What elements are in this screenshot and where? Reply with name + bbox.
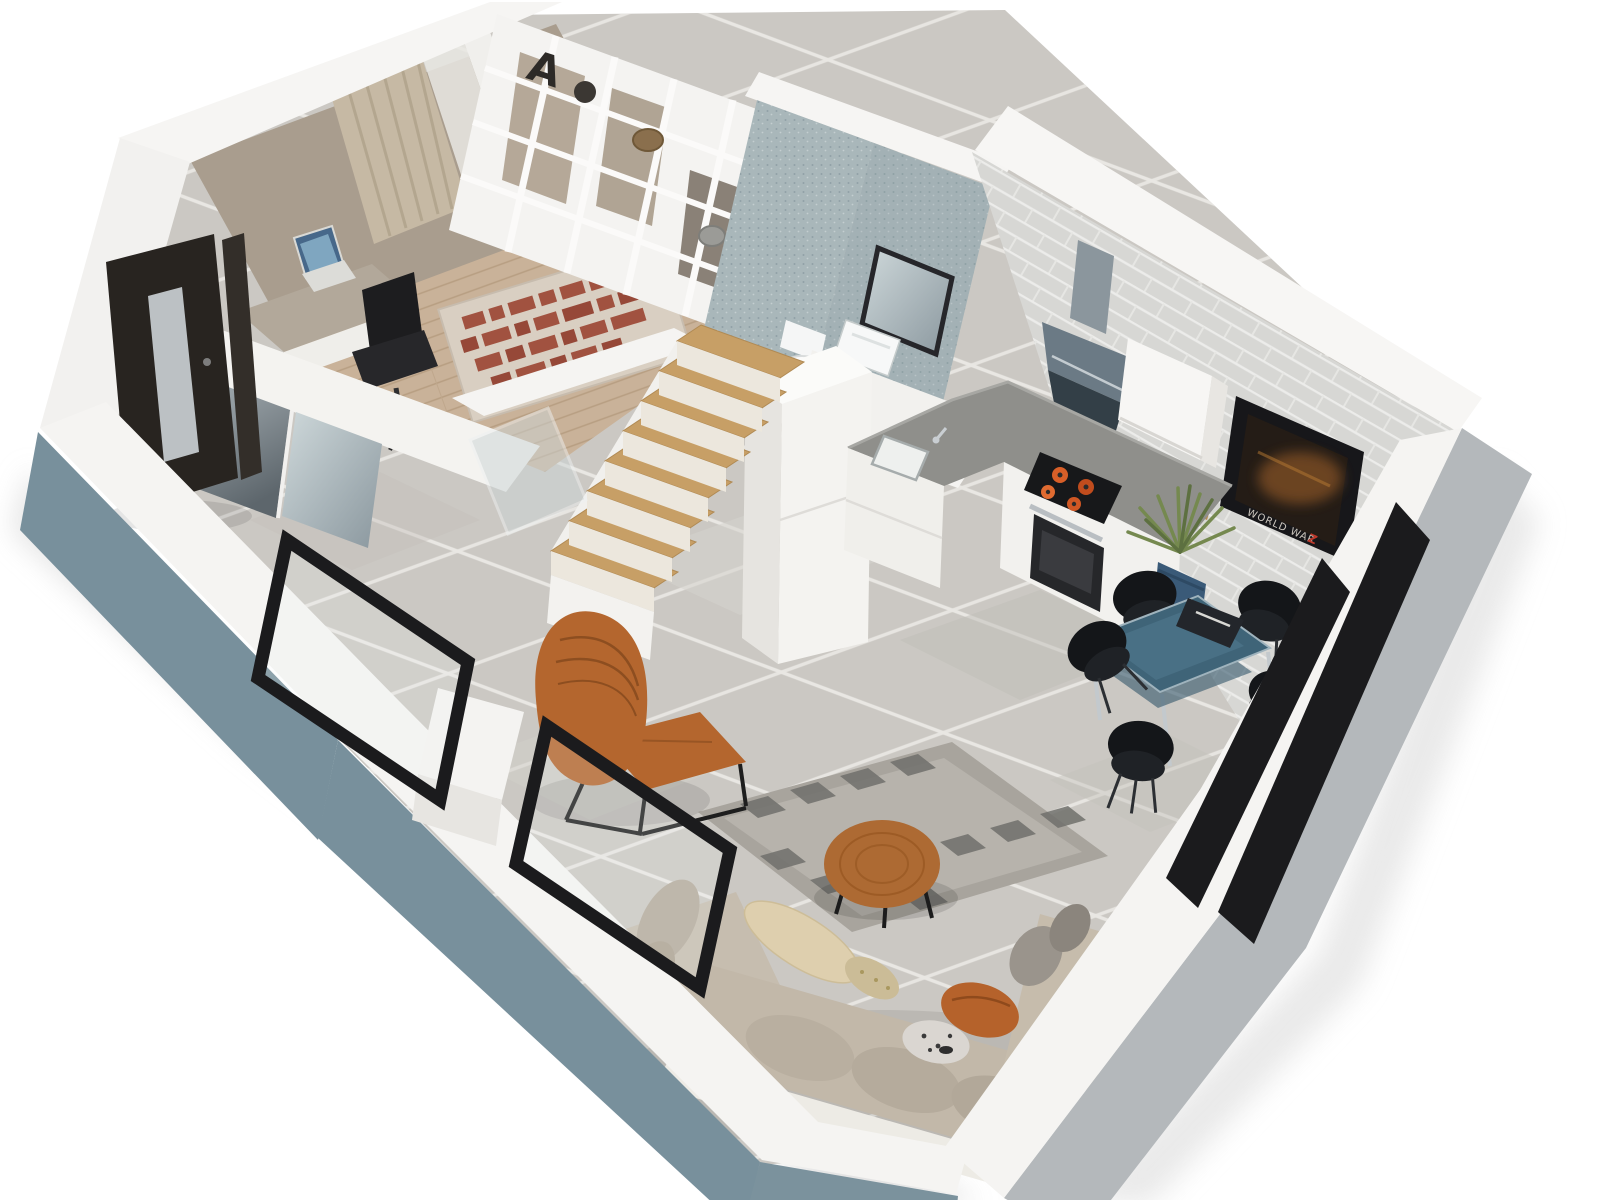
- door-handle: [203, 358, 211, 366]
- apartment-scene: A WORLD WAR Z: [0, 0, 1600, 1200]
- basket-decor: [633, 129, 663, 151]
- floor-plan-render: A WORLD WAR Z: [0, 0, 1600, 1200]
- basket-decor: [699, 226, 725, 246]
- sphere-decor: [574, 81, 596, 103]
